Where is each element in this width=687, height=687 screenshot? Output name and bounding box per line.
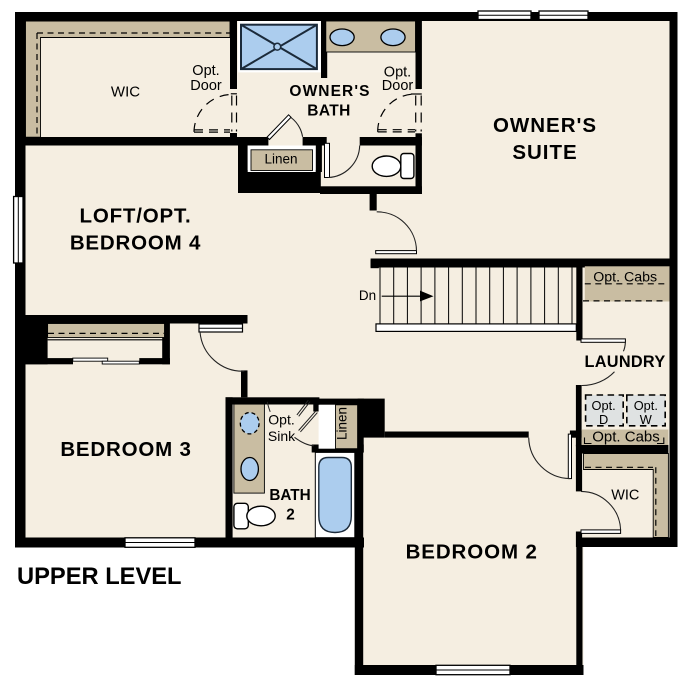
svg-text:UPPER LEVEL: UPPER LEVEL	[17, 564, 182, 590]
svg-text:Opt.: Opt.	[634, 398, 658, 413]
svg-text:BEDROOM 3: BEDROOM 3	[60, 438, 191, 461]
svg-text:2: 2	[286, 507, 295, 524]
svg-text:BEDROOM 4: BEDROOM 4	[70, 232, 201, 255]
svg-text:Sink: Sink	[268, 428, 296, 444]
svg-text:OWNER'S: OWNER'S	[493, 114, 597, 137]
svg-text:Linen: Linen	[335, 407, 350, 440]
svg-text:W: W	[640, 412, 653, 427]
svg-text:BATH: BATH	[307, 103, 351, 120]
svg-text:Door: Door	[190, 78, 222, 94]
svg-text:WIC: WIC	[611, 488, 639, 504]
svg-text:BATH: BATH	[269, 487, 310, 504]
svg-text:WIC: WIC	[111, 83, 140, 100]
svg-text:Opt. Cabs: Opt. Cabs	[593, 270, 657, 286]
svg-text:D: D	[599, 412, 608, 427]
svg-text:Opt.: Opt.	[592, 398, 616, 413]
svg-text:Opt.: Opt.	[268, 412, 294, 428]
svg-text:Linen: Linen	[264, 151, 297, 166]
svg-text:Dn: Dn	[359, 288, 376, 303]
svg-text:BEDROOM 2: BEDROOM 2	[406, 541, 538, 564]
svg-text:LAUNDRY: LAUNDRY	[584, 353, 665, 371]
svg-text:Opt.: Opt.	[192, 63, 219, 79]
svg-text:Door: Door	[382, 78, 414, 94]
svg-text:OWNER'S: OWNER'S	[289, 83, 370, 100]
svg-text:LOFT/OPT.: LOFT/OPT.	[80, 204, 192, 227]
svg-text:Opt. Cabs: Opt. Cabs	[592, 429, 660, 446]
svg-text:SUITE: SUITE	[512, 141, 577, 164]
